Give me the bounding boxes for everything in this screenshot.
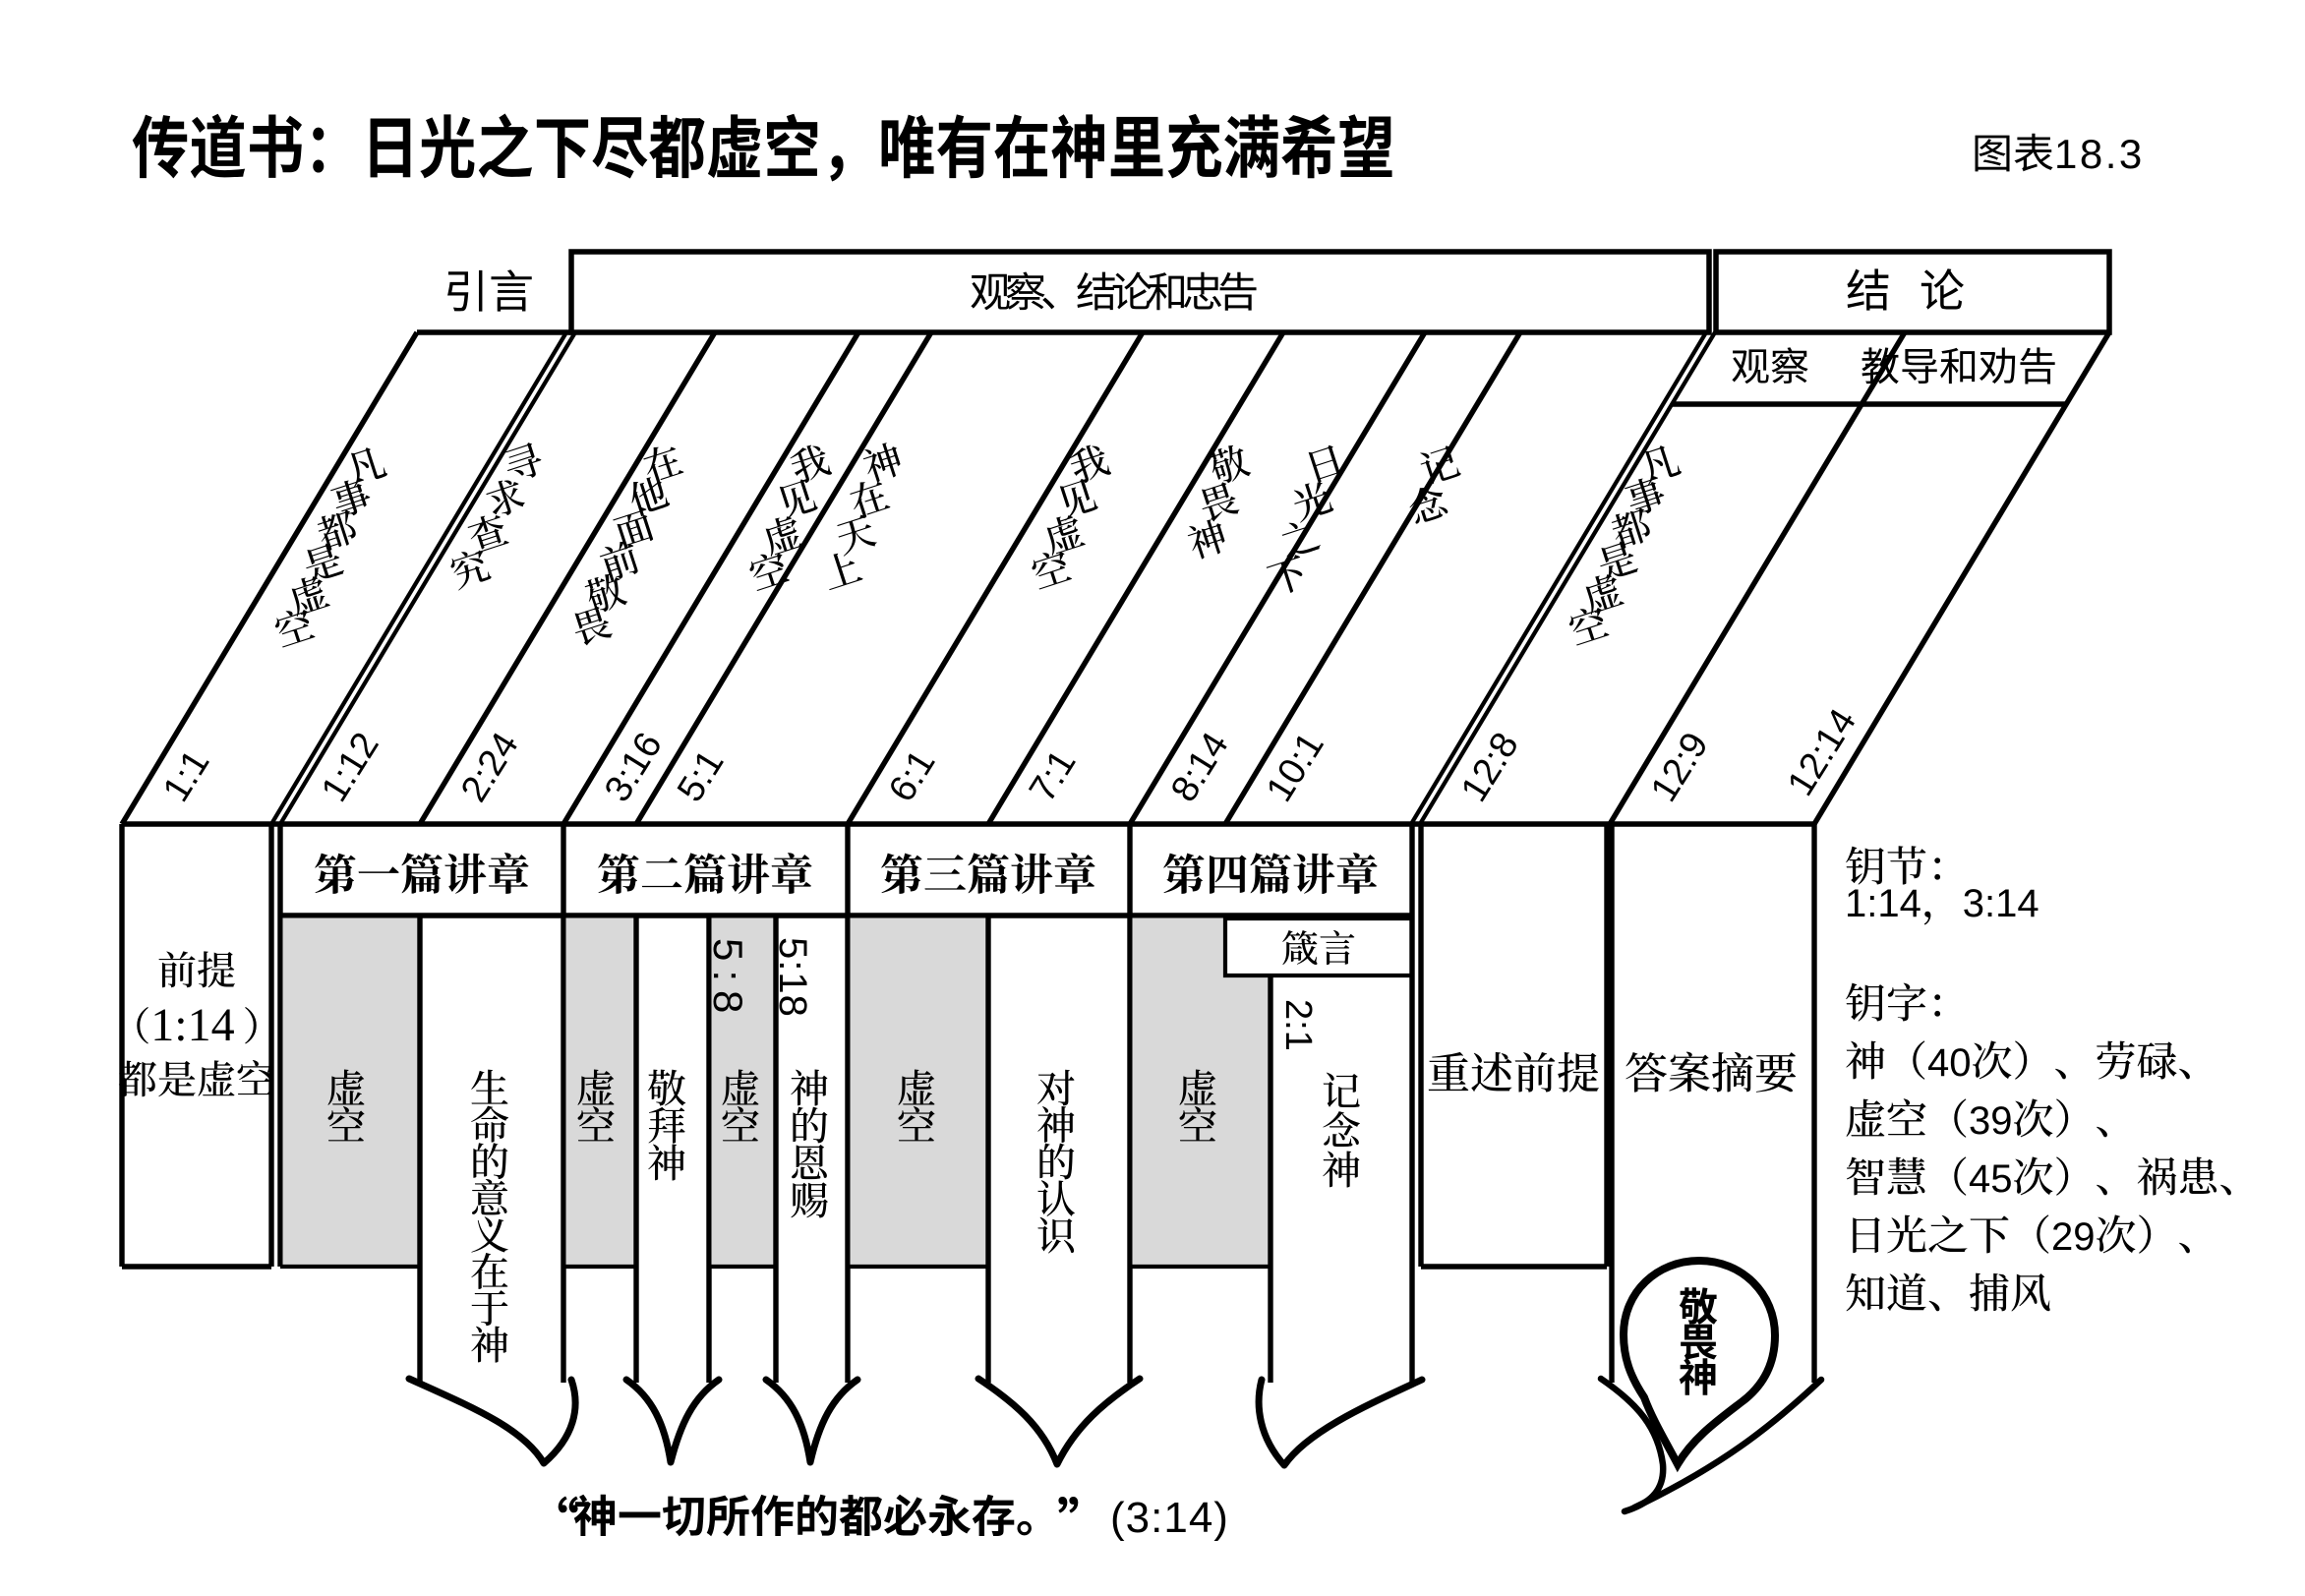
svg-text:39: 39 [1969,1099,2013,1143]
svg-text:5:18: 5:18 [771,937,814,1018]
svg-text:40: 40 [1927,1041,1972,1085]
svg-text:3:14: 3:14 [1963,882,2039,925]
svg-text:1:14: 1:14 [150,999,234,1051]
svg-text:5:8: 5:8 [705,938,751,1022]
svg-text:1:14: 1:14 [1845,882,1921,925]
svg-text:2:1: 2:1 [1277,999,1319,1051]
svg-text:18.3: 18.3 [2054,131,2145,177]
svg-text:45: 45 [1969,1157,2013,1201]
svg-text:(3:14): (3:14) [1110,1494,1229,1542]
svg-text:29: 29 [2051,1215,2096,1259]
